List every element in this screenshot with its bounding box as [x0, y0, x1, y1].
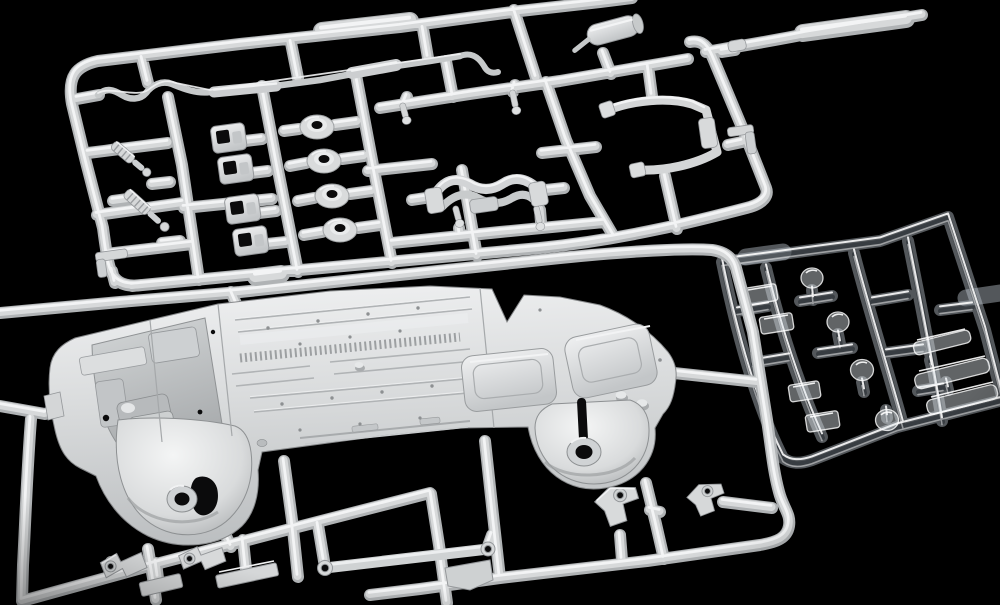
photo-model-kit-sprues	[0, 0, 1000, 605]
vignette-overlay	[0, 0, 1000, 605]
photo-canvas	[0, 0, 1000, 605]
